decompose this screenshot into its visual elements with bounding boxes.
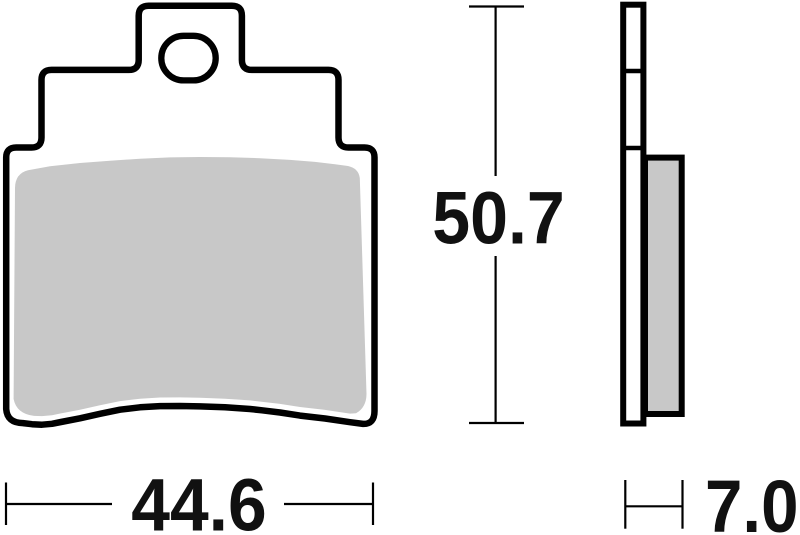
svg-text:50.7: 50.7 xyxy=(432,177,565,260)
svg-text:7.0: 7.0 xyxy=(705,465,799,535)
svg-text:44.6: 44.6 xyxy=(131,464,267,535)
